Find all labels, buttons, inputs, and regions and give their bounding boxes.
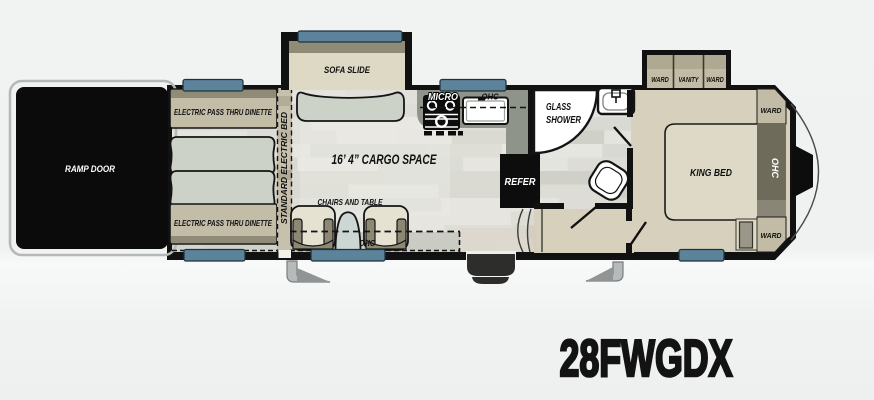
svg-text:16’ 4” CARGO SPACE: 16’ 4” CARGO SPACE bbox=[332, 152, 438, 167]
svg-text:RAMP DOOR: RAMP DOOR bbox=[65, 164, 115, 174]
svg-text:WARD: WARD bbox=[651, 77, 669, 84]
svg-text:GLASS: GLASS bbox=[546, 102, 571, 113]
svg-text:SHOWER: SHOWER bbox=[546, 115, 582, 126]
svg-text:STANDARD ELECTRIC BED: STANDARD ELECTRIC BED bbox=[279, 112, 289, 224]
svg-text:ELECTRIC PASS THRU DINETTE: ELECTRIC PASS THRU DINETTE bbox=[174, 108, 272, 117]
svg-text:KING BED: KING BED bbox=[690, 167, 732, 179]
svg-text:WARD: WARD bbox=[706, 77, 724, 84]
svg-text:28FWGDX: 28FWGDX bbox=[560, 330, 733, 388]
svg-text:ELECTRIC PASS THRU DINETTE: ELECTRIC PASS THRU DINETTE bbox=[174, 219, 272, 228]
svg-text:WARD: WARD bbox=[761, 106, 782, 115]
svg-text:OHC: OHC bbox=[482, 92, 500, 102]
svg-text:OHC: OHC bbox=[359, 239, 375, 248]
svg-text:VANITY: VANITY bbox=[679, 77, 700, 84]
svg-text:OHC: OHC bbox=[769, 158, 780, 178]
svg-text:WARD: WARD bbox=[761, 231, 782, 240]
svg-text:MICRO: MICRO bbox=[428, 92, 458, 103]
svg-text:REFER: REFER bbox=[505, 177, 537, 188]
svg-text:SOFA SLIDE: SOFA SLIDE bbox=[324, 65, 371, 75]
